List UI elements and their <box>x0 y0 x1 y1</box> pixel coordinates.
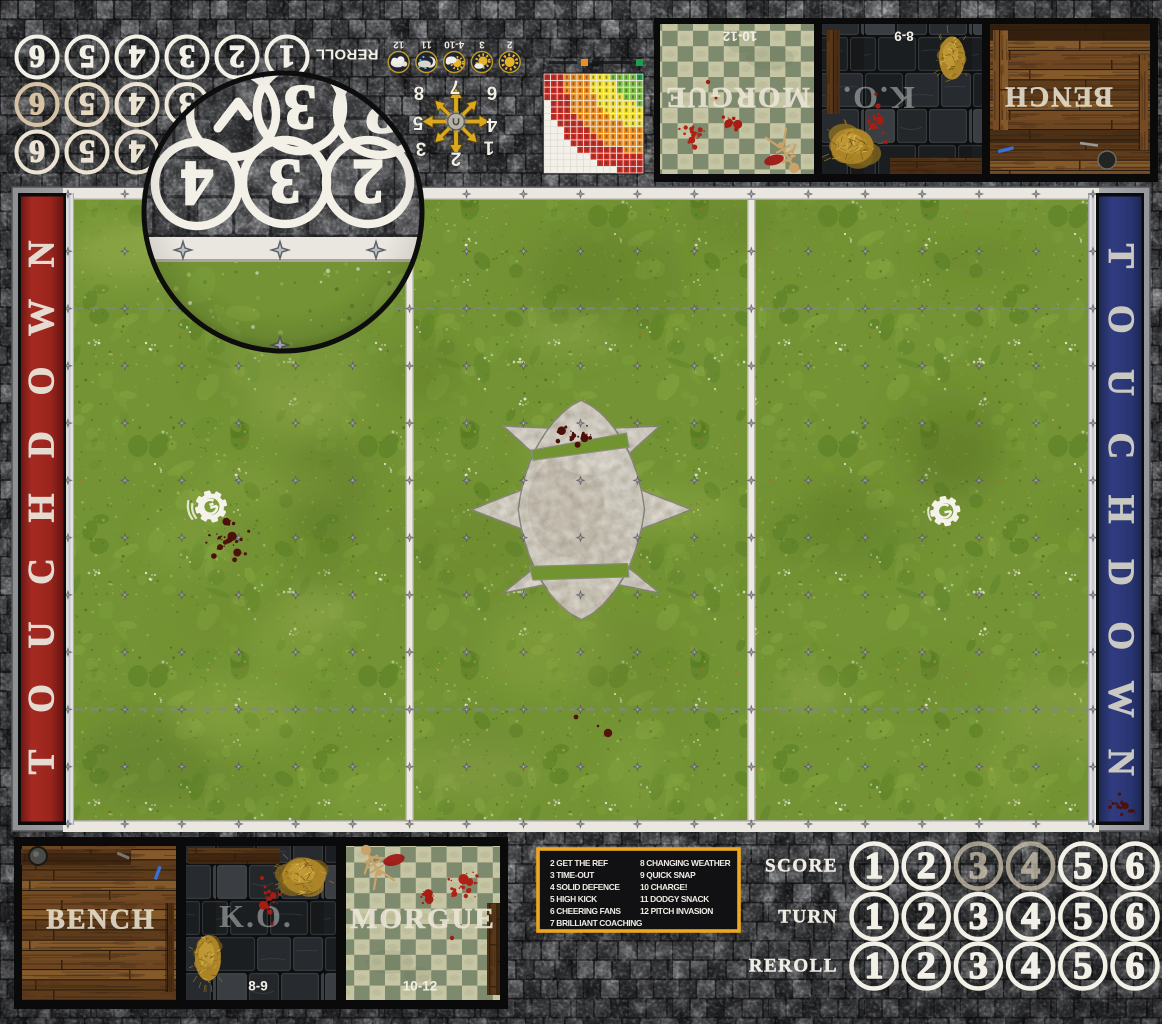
svg-text:4 SOLID DEFENCE: 4 SOLID DEFENCE <box>550 882 620 892</box>
svg-text:6: 6 <box>29 39 45 75</box>
svg-text:O: O <box>22 367 63 396</box>
svg-text:12: 12 <box>393 39 405 50</box>
svg-text:4: 4 <box>1021 896 1040 938</box>
svg-text:H: H <box>1100 495 1141 524</box>
svg-text:2: 2 <box>917 845 936 887</box>
svg-text:5: 5 <box>79 87 95 123</box>
svg-text:4-10: 4-10 <box>444 39 464 50</box>
svg-text:T: T <box>22 749 63 774</box>
svg-text:4: 4 <box>1021 845 1040 887</box>
svg-text:K.O.: K.O. <box>841 80 915 116</box>
svg-text:10 CHARGE!: 10 CHARGE! <box>640 882 687 892</box>
svg-text:12 PITCH INVASION: 12 PITCH INVASION <box>640 906 713 916</box>
svg-text:W: W <box>1100 681 1141 718</box>
svg-text:8: 8 <box>414 82 425 103</box>
svg-text:5: 5 <box>79 39 95 75</box>
svg-text:4: 4 <box>486 114 497 135</box>
svg-text:W: W <box>22 299 63 336</box>
svg-text:10-12: 10-12 <box>403 979 438 994</box>
svg-text:3: 3 <box>969 845 988 887</box>
svg-text:9 QUICK SNAP: 9 QUICK SNAP <box>640 870 696 880</box>
svg-text:4: 4 <box>129 134 145 170</box>
svg-text:11 DODGY SNACK: 11 DODGY SNACK <box>640 894 709 904</box>
svg-text:8-9: 8-9 <box>894 29 914 44</box>
svg-text:4: 4 <box>1021 945 1040 987</box>
svg-text:5 HIGH KICK: 5 HIGH KICK <box>550 894 597 904</box>
svg-text:REROLL: REROLL <box>316 46 379 63</box>
svg-text:3: 3 <box>969 945 988 987</box>
svg-text:5: 5 <box>79 134 95 170</box>
svg-text:C: C <box>22 558 63 585</box>
svg-text:1: 1 <box>865 945 884 987</box>
svg-text:3: 3 <box>416 138 427 159</box>
svg-text:TURN: TURN <box>778 907 838 928</box>
svg-text:2: 2 <box>506 39 512 50</box>
svg-text:6: 6 <box>1126 945 1145 987</box>
svg-text:6: 6 <box>29 87 45 123</box>
svg-text:D: D <box>22 431 63 458</box>
svg-text:REROLL: REROLL <box>749 956 838 977</box>
svg-text:10-12: 10-12 <box>723 29 758 44</box>
svg-text:5: 5 <box>1073 896 1092 938</box>
svg-text:6: 6 <box>487 82 498 103</box>
svg-text:1: 1 <box>865 896 884 938</box>
svg-text:1: 1 <box>483 137 494 158</box>
svg-text:5: 5 <box>1073 945 1092 987</box>
svg-text:O: O <box>1100 305 1141 334</box>
svg-text:2 GET THE REF: 2 GET THE REF <box>550 858 608 868</box>
svg-text:U: U <box>22 622 63 649</box>
svg-text:2: 2 <box>917 945 936 987</box>
svg-text:O: O <box>1100 621 1141 650</box>
svg-text:6: 6 <box>1126 896 1145 938</box>
svg-text:6: 6 <box>29 134 45 170</box>
svg-text:7 BRILLIANT COACHING: 7 BRILLIANT COACHING <box>550 918 642 928</box>
svg-text:7: 7 <box>450 76 461 97</box>
svg-text:1: 1 <box>865 845 884 887</box>
svg-text:8-9: 8-9 <box>248 979 268 994</box>
svg-text:N: N <box>1100 749 1141 776</box>
svg-text:BENCH: BENCH <box>46 905 156 936</box>
svg-text:3 TIME-OUT: 3 TIME-OUT <box>550 870 595 880</box>
svg-text:6: 6 <box>1126 845 1145 887</box>
svg-text:2: 2 <box>229 39 245 75</box>
svg-text:5: 5 <box>412 112 423 133</box>
svg-text:N: N <box>22 240 63 267</box>
svg-text:BENCH: BENCH <box>1003 81 1113 112</box>
svg-text:T: T <box>1100 244 1141 269</box>
svg-text:C: C <box>1100 433 1141 460</box>
svg-text:3: 3 <box>479 39 485 50</box>
svg-text:11: 11 <box>421 39 432 50</box>
svg-text:3: 3 <box>179 39 195 75</box>
svg-text:SCORE: SCORE <box>765 856 838 877</box>
svg-text:H: H <box>22 493 63 522</box>
svg-text:MORGUE: MORGUE <box>664 81 810 113</box>
svg-text:O: O <box>22 684 63 713</box>
svg-text:2: 2 <box>451 148 462 169</box>
svg-text:MORGUE: MORGUE <box>350 903 496 935</box>
svg-text:2: 2 <box>917 896 936 938</box>
svg-text:U: U <box>1100 369 1141 396</box>
svg-text:1: 1 <box>279 39 295 75</box>
svg-text:5: 5 <box>1073 845 1092 887</box>
svg-text:4: 4 <box>129 39 145 75</box>
svg-text:3: 3 <box>969 896 988 938</box>
svg-text:K.O.: K.O. <box>219 898 293 934</box>
svg-text:8 CHANGING WEATHER: 8 CHANGING WEATHER <box>640 858 731 868</box>
svg-text:4: 4 <box>129 87 145 123</box>
svg-text:D: D <box>1100 559 1141 586</box>
svg-text:6 CHEERING FANS: 6 CHEERING FANS <box>550 906 621 916</box>
